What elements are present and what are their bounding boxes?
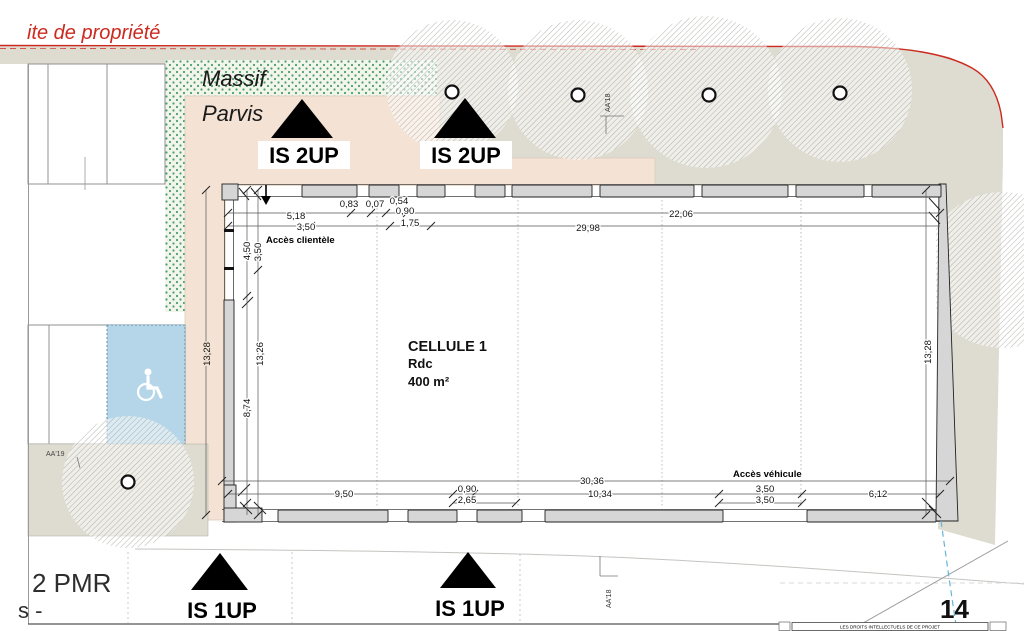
dim-label: 29,98 bbox=[576, 223, 600, 234]
dim-label: 3,50 bbox=[253, 243, 264, 262]
dim-label: 5,18 bbox=[287, 211, 306, 222]
footer-strip: LES DROITS INTELLECTUELS DE CE PROJET bbox=[779, 622, 1006, 631]
dim-label: 4,50 bbox=[242, 242, 253, 261]
cell-name: CELLULE 1 bbox=[408, 339, 487, 355]
exit-label: IS 2UP bbox=[269, 143, 339, 168]
dim-label: 3,50 bbox=[297, 222, 316, 233]
dim-label: 3,50 bbox=[756, 484, 775, 495]
edge-text: s - bbox=[18, 598, 42, 623]
dim-label: 30,36 bbox=[580, 476, 604, 487]
sheet-number: 14 bbox=[940, 594, 969, 624]
footer-text: LES DROITS INTELLECTUELS DE CE PROJET bbox=[840, 625, 940, 630]
exit-label: IS 2UP bbox=[431, 143, 501, 168]
parking-stalls-top bbox=[28, 64, 165, 190]
dim-label: 6,12 bbox=[869, 489, 888, 500]
dim-label: 22,06 bbox=[669, 209, 693, 220]
massif-label: Massif bbox=[202, 66, 268, 91]
cell-level: Rdc bbox=[408, 356, 433, 371]
dim-label: 1,75 bbox=[401, 218, 420, 229]
dim-label: 8,74 bbox=[242, 399, 253, 418]
section-label-top: AA'18 bbox=[605, 93, 612, 112]
dim-label: 10,34 bbox=[588, 489, 612, 500]
dim-label: 13,28 bbox=[923, 340, 934, 364]
bottom-wall-segments bbox=[278, 510, 936, 522]
pmr-label: 2 PMR bbox=[32, 568, 111, 598]
property-line-label: ite de propriété bbox=[27, 22, 160, 44]
cell-area: 400 m² bbox=[408, 374, 450, 389]
floor-plan-drawing: IS 2UP IS 2UP IS 1UP IS 1UP ite de propr… bbox=[0, 0, 1024, 631]
exit-label: IS 1UP bbox=[187, 598, 257, 623]
dim-label: 0,83 bbox=[340, 199, 359, 210]
section-label-left: AA'19 bbox=[46, 451, 65, 458]
access-vehicle-label: Accès véhicule bbox=[733, 469, 802, 480]
dim-label: 0,90 bbox=[458, 484, 477, 495]
dim-label: 3,50 bbox=[756, 495, 775, 506]
dim-label: 0,90 bbox=[396, 206, 415, 217]
dim-label: 13,28 bbox=[202, 342, 213, 366]
dim-label: 0,07 bbox=[366, 199, 385, 210]
section-label-bottom: AA'18 bbox=[606, 589, 613, 608]
dim-label: 9,50 bbox=[335, 489, 354, 500]
access-client-label: Accès clientèle bbox=[266, 235, 335, 246]
floor-plan-sheet: IS 2UP IS 2UP IS 1UP IS 1UP ite de propr… bbox=[0, 0, 1024, 631]
dim-label: 2,65 bbox=[458, 495, 477, 506]
exit-label: IS 1UP bbox=[435, 596, 505, 621]
parvis-label: Parvis bbox=[202, 101, 263, 126]
dim-label: 13,26 bbox=[255, 342, 266, 366]
